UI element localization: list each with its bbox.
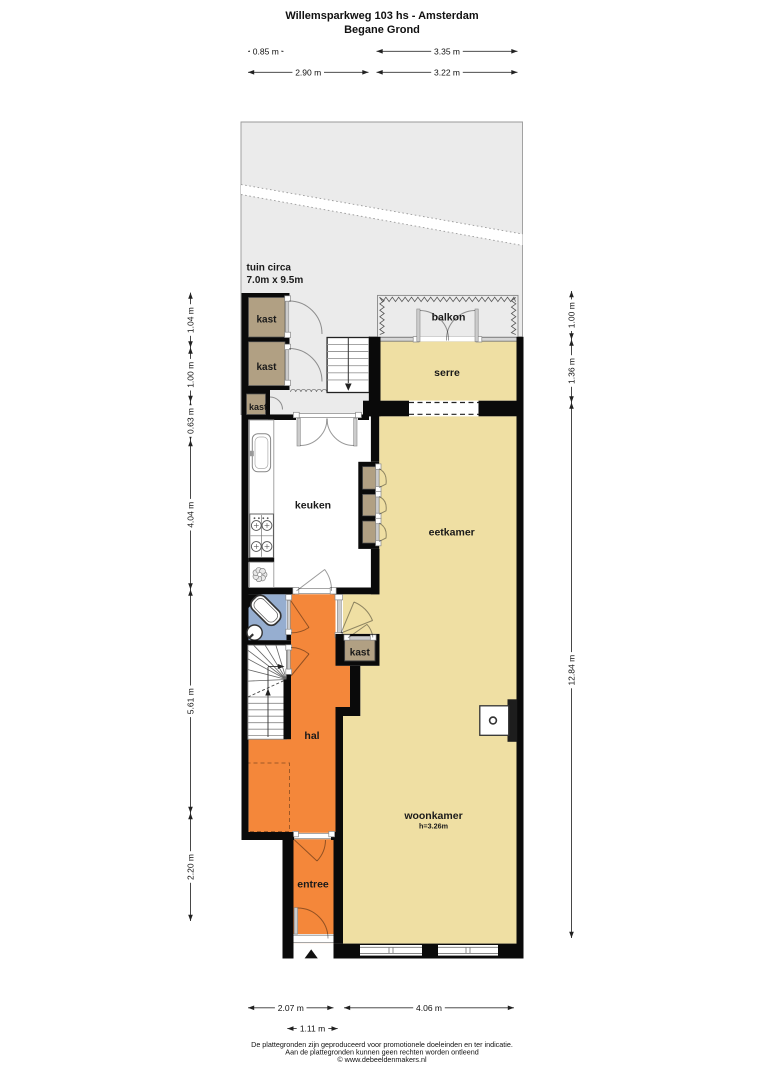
svg-text:Willemsparkweg 103 hs - Amster: Willemsparkweg 103 hs - Amsterdam [285,10,479,22]
svg-text:kast: kast [256,315,277,326]
svg-text:1.04 m: 1.04 m [186,307,196,333]
svg-text:eetkamer: eetkamer [429,527,475,539]
svg-text:© www.debeeldenmakers.nl: © www.debeeldenmakers.nl [337,1055,427,1064]
svg-text:woonkamer: woonkamer [403,810,462,822]
svg-text:1.11 m: 1.11 m [300,1024,325,1034]
svg-text:4.06 m: 4.06 m [416,1003,442,1013]
svg-text:1.36 m: 1.36 m [567,358,577,384]
svg-text:4.04 m: 4.04 m [186,502,196,528]
svg-text:7.0m x 9.5m: 7.0m x 9.5m [247,275,304,286]
svg-text:1.00 m: 1.00 m [567,302,577,328]
svg-text:h=3.26m: h=3.26m [419,822,448,831]
svg-text:kast: kast [350,648,371,659]
svg-text:1.00 m: 1.00 m [186,362,196,388]
svg-text:Begane Grond: Begane Grond [344,24,420,36]
svg-text:hal: hal [304,730,319,742]
svg-text:2.07 m: 2.07 m [278,1003,304,1013]
svg-text:2.90 m: 2.90 m [295,67,321,77]
svg-text:tuin circa: tuin circa [247,263,292,274]
svg-text:keuken: keuken [295,500,331,512]
svg-text:kast: kast [249,402,267,412]
svg-text:3.22 m: 3.22 m [434,67,460,77]
svg-text:5.61 m: 5.61 m [186,688,196,714]
svg-text:0.85 m: 0.85 m [253,46,279,56]
svg-text:entree: entree [297,879,329,891]
svg-text:2.20 m: 2.20 m [186,854,196,880]
svg-text:kast: kast [256,362,277,373]
svg-text:12.84 m: 12.84 m [567,655,577,686]
svg-text:3.35 m: 3.35 m [434,46,460,56]
svg-text:0.63 m: 0.63 m [186,408,196,434]
svg-text:balkon: balkon [432,312,466,324]
svg-text:serre: serre [434,367,460,379]
